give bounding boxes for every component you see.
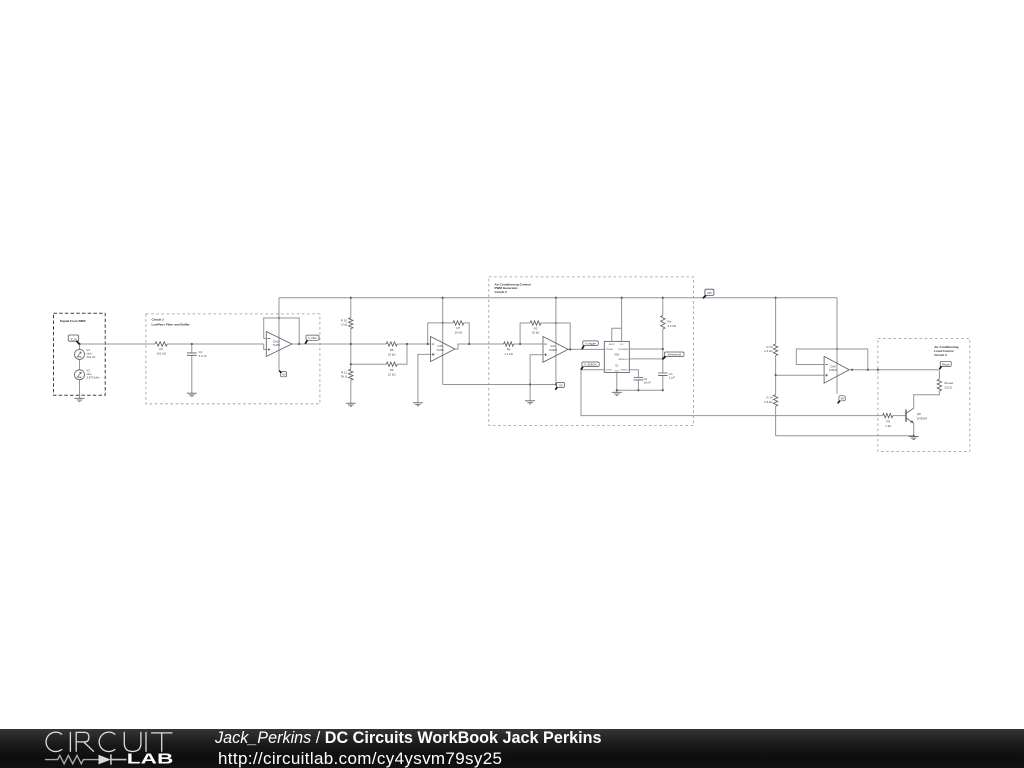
svg-text:2 kΩ: 2 kΩ (341, 322, 348, 326)
svg-text:OUTPUT: OUTPUT (605, 370, 612, 372)
svg-text:V_filter: V_filter (308, 336, 317, 340)
svg-text:-5V: -5V (840, 397, 844, 401)
svg-text:1 μF: 1 μF (669, 375, 675, 379)
svg-text:3.3 nF: 3.3 nF (199, 354, 207, 358)
svg-text:TRIGGER: TRIGGER (605, 349, 613, 351)
svg-text:R3: R3 (886, 420, 890, 424)
svg-text:TL081: TL081 (272, 343, 280, 347)
svg-text:10 nF: 10 nF (644, 381, 652, 385)
svg-text:CONTROL: CONTROL (620, 370, 628, 372)
svg-text:R2: R2 (534, 326, 538, 330)
svg-text:10 kΩ: 10 kΩ (455, 331, 463, 335)
svg-text:2.2 kΩ: 2.2 kΩ (668, 324, 677, 328)
svg-text:10 kΩ: 10 kΩ (388, 352, 396, 356)
svg-text:2.4 kΩ: 2.4 kΩ (764, 349, 773, 353)
svg-text:Rload: Rload (942, 362, 950, 366)
svg-text:LM324: LM324 (549, 348, 558, 352)
svg-text:10 kΩ: 10 kΩ (388, 373, 396, 377)
svg-text:LowPass Filter and Buffer: LowPass Filter and Buffer (152, 323, 191, 327)
svg-text:220 Ω: 220 Ω (945, 386, 954, 390)
svg-text:OA10: OA10 (273, 340, 280, 344)
svg-text:R4: R4 (507, 348, 511, 352)
svg-text:555: 555 (615, 352, 620, 356)
svg-text:LM324: LM324 (829, 368, 838, 372)
svg-text:V_in: V_in (70, 337, 76, 341)
svg-text:OA6: OA6 (437, 344, 443, 348)
svg-text:R7: R7 (457, 326, 461, 330)
svg-text:V_trigger: V_trigger (585, 342, 596, 346)
svg-text:Circuit 3: Circuit 3 (934, 353, 947, 357)
svg-text:1 kΩ: 1 kΩ (885, 424, 892, 428)
svg-text:THRESHOLD: THRESHOLD (618, 359, 629, 361)
svg-text:2N3904: 2N3904 (917, 416, 928, 420)
svg-text:U1: U1 (615, 363, 619, 367)
svg-text:-5V: -5V (282, 373, 286, 377)
svg-text:10 kΩ: 10 kΩ (532, 331, 540, 335)
svg-text:Q8: Q8 (917, 412, 921, 416)
svg-text:Circuit 2: Circuit 2 (495, 290, 508, 294)
svg-text:DISCHARGE: DISCHARGE (618, 348, 629, 351)
svg-text:V_555Out: V_555Out (584, 363, 597, 367)
svg-text:59 Ω: 59 Ω (341, 375, 348, 379)
svg-text:OA1: OA1 (550, 344, 556, 348)
svg-text:OA8: OA8 (830, 365, 836, 369)
svg-text:R8: R8 (390, 348, 394, 352)
svg-text:RESET: RESET (609, 344, 615, 346)
svg-text:Circuit 1: Circuit 1 (152, 318, 165, 322)
svg-text:2.873 kHz: 2.873 kHz (86, 375, 100, 379)
svg-text:RLoad: RLoad (945, 381, 954, 385)
svg-text:Ra: Ra (668, 319, 672, 323)
svg-text:TL081: TL081 (436, 348, 444, 352)
svg-text:Signal From BMS: Signal From BMS (60, 319, 86, 323)
svg-text:R1: R1 (159, 347, 163, 351)
svg-text:221 Hz: 221 Hz (86, 355, 96, 359)
svg-text:+5V: +5V (707, 291, 712, 295)
svg-text:R9: R9 (390, 368, 394, 372)
svg-text:161 kΩ: 161 kΩ (157, 352, 167, 356)
svg-text:3.3 kΩ: 3.3 kΩ (764, 400, 773, 404)
svg-text:Vthreshold: Vthreshold (668, 353, 682, 357)
svg-text:-5V: -5V (559, 383, 563, 387)
svg-text:1.1 kΩ: 1.1 kΩ (504, 352, 513, 356)
svg-text:LAB: LAB (127, 752, 174, 768)
